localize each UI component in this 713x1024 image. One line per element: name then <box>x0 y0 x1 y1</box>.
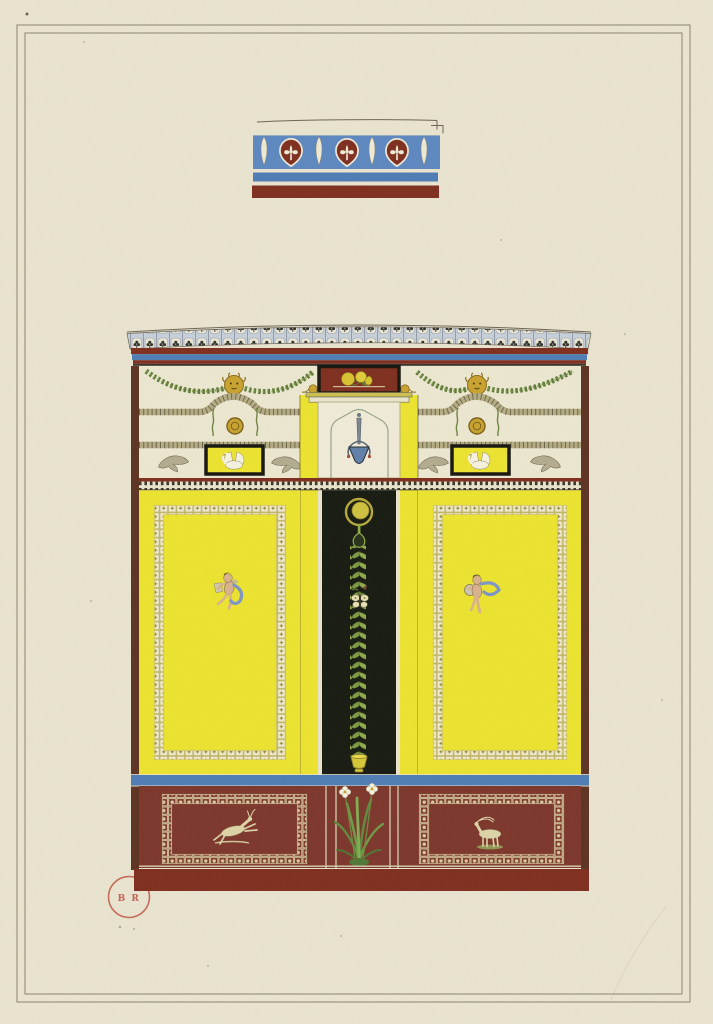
pompeii-wall-painting-study: B R <box>0 0 713 1024</box>
paper-grain-overlay <box>0 0 713 1024</box>
scanned-plate: B R <box>0 0 713 1024</box>
